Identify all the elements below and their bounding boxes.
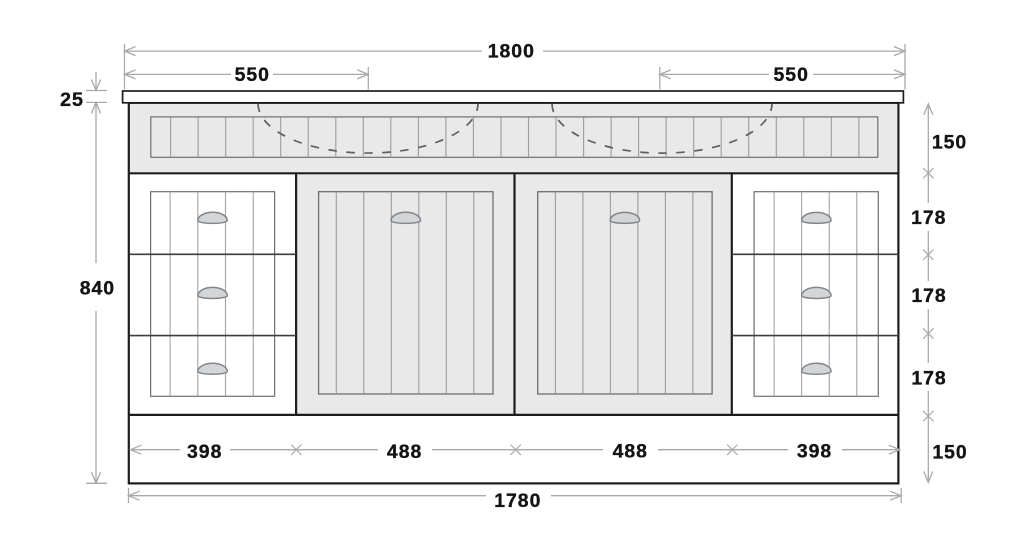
svg-text:150: 150 xyxy=(932,132,967,154)
svg-text:1800: 1800 xyxy=(488,41,535,63)
svg-text:1780: 1780 xyxy=(494,490,541,512)
svg-text:178: 178 xyxy=(911,285,946,307)
svg-text:550: 550 xyxy=(774,64,809,86)
svg-text:25: 25 xyxy=(60,89,84,111)
svg-text:488: 488 xyxy=(387,441,422,463)
svg-text:398: 398 xyxy=(797,441,832,463)
svg-text:150: 150 xyxy=(932,441,967,463)
svg-text:840: 840 xyxy=(80,277,115,299)
svg-text:488: 488 xyxy=(613,441,648,463)
svg-text:550: 550 xyxy=(235,64,270,86)
svg-text:178: 178 xyxy=(911,207,946,229)
svg-text:398: 398 xyxy=(187,441,222,463)
svg-text:178: 178 xyxy=(911,367,946,389)
